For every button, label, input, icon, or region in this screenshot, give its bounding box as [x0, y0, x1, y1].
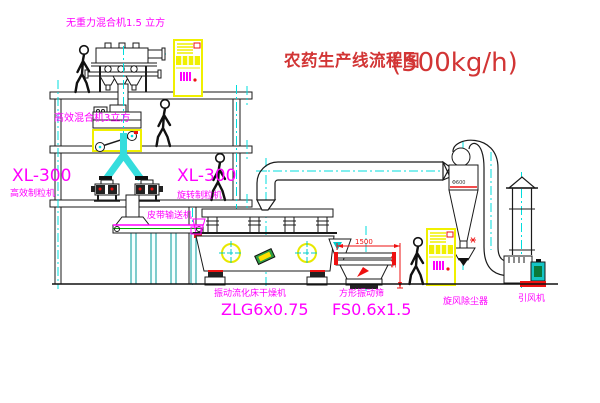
production-line-diagram: 农药生产线流程图 (500kg/h) 无重力混合机1.5 立方 高效混合机3立方… — [0, 0, 600, 403]
person-figure-roof — [76, 46, 90, 92]
label-high-eff-mixer: 高效混合机3立方 — [54, 111, 130, 124]
control-cabinet-roof — [174, 40, 202, 96]
label-granulator-left-model: XL-300 — [12, 166, 71, 186]
label-granulator-right-name: 旋转制粒机 — [177, 189, 222, 201]
label-cyclone-name: 旋风除尘器 — [443, 295, 488, 307]
conveyor-leg — [171, 233, 176, 284]
dim-sieve-height: 541 — [390, 255, 398, 268]
conveyor-leg — [191, 233, 196, 284]
conveyor-leg — [131, 233, 136, 284]
roof-mixer-side-pipe — [148, 50, 162, 58]
conveyor-leg — [151, 233, 156, 284]
floor-slab-middle — [50, 146, 252, 153]
roof-mixer-machine — [85, 43, 165, 114]
diagram-title-capacity: (500kg/h) — [391, 48, 518, 78]
granulator-left — [91, 180, 120, 201]
person-figure-ground — [410, 238, 424, 284]
label-sieve-name: 方形振动筛 — [339, 287, 384, 299]
label-belt-conveyor: 皮带输送机 — [147, 209, 192, 221]
floor-slab-top — [50, 92, 252, 99]
label-gravity-mixer: 无重力混合机1.5 立方 — [66, 16, 165, 29]
person-figure-floor2 — [157, 100, 171, 146]
fluid-bed-dryer — [191, 209, 337, 285]
induced-draft-fan — [504, 256, 546, 287]
floor2-mixer-machine — [93, 105, 141, 152]
dryer-exhaust-risers — [206, 217, 329, 233]
dim-cyclone-diameter: Φ600 — [452, 180, 465, 186]
dim-sieve-width: 1500 — [355, 238, 373, 246]
label-fan-name: 引风机 — [518, 292, 545, 304]
label-granulator-right-model: XL-300 — [177, 166, 236, 186]
exhaust-duct — [257, 162, 450, 210]
label-granulator-left-name: 高效制粒机 — [10, 187, 55, 199]
cyclone-valve-mark — [470, 238, 476, 243]
label-dryer-name: 振动流化床干燥机 — [214, 287, 286, 299]
label-dryer-model: ZLG6x0.75 — [221, 300, 309, 319]
flow-diagram-canvas: 农药生产线流程图 (500kg/h) 无重力混合机1.5 立方 高效混合机3立方… — [0, 0, 600, 403]
label-sieve-model: FS0.6x1.5 — [332, 300, 411, 319]
control-cabinet-ground — [427, 229, 455, 285]
